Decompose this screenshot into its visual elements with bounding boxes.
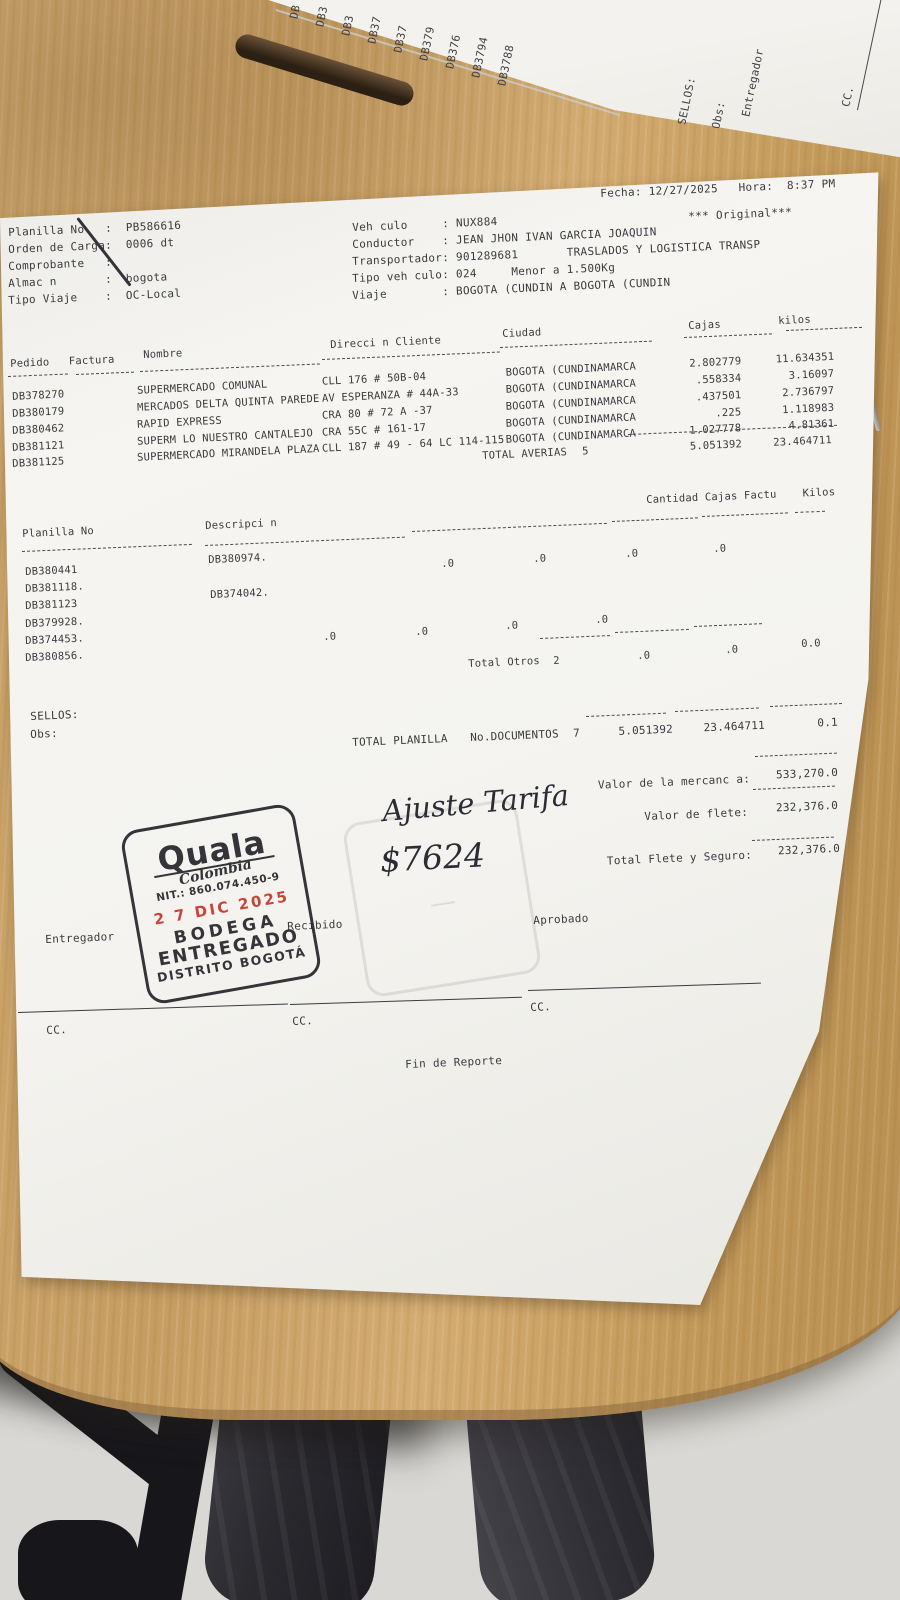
planilla-id: DB379928. [25,616,84,631]
docs-label: No.DOCUMENTOS [470,727,559,744]
docs-count: 7 [573,726,580,739]
top-sheet: DB DB3 DB3 DB37 DB37 DB379 DB376 DB3794 … [250,0,900,262]
cell-pedido: DB381125 [12,455,65,471]
obs-label: Obs: [30,727,58,741]
cell-pedido: DB380179 [12,405,65,421]
total-averias-label: TOTAL AVERIAS [482,446,567,463]
cell-nombre: RAPID EXPRESS [137,415,222,432]
col-cajas: Cajas [688,319,721,333]
cc-label: CC. [46,1023,67,1037]
stamp-ghost [341,797,542,998]
value-zero: .0 [323,630,337,644]
aprobado-label: Aprobado [533,912,589,927]
total-otros-count: 2 [553,655,560,668]
descripcion-id: DB380974. [208,552,267,567]
cc-label: CC. [530,1000,551,1014]
quala-stamp: Quala Colombia NIT.: 860.074.450-9 2 7 D… [119,802,323,1006]
cell-pedido: DB381121 [12,439,65,455]
value-zero: .0 [415,625,429,639]
value-zero: .0 [595,613,609,627]
top-sheet-paper [250,0,900,262]
value-zero: .0 [441,557,455,571]
value-zero: .0 [713,542,727,556]
total-planilla-label: TOTAL PLANILLA [352,732,448,749]
total-averias-count: 5 [582,445,589,458]
total-planilla-cajas: 5.051392 [583,723,673,740]
total-otros-v2: .0 [725,643,739,657]
col-nombre: Nombre [143,347,183,362]
descripcion-id: DB374042. [210,587,269,602]
value-zero: .0 [533,552,547,566]
chair-foot [18,1520,138,1600]
planilla-id: DB380856. [25,650,84,665]
col-ciudad: Ciudad [502,326,542,341]
planilla-id: DB381118. [25,581,84,596]
total-otros-v1: .0 [637,649,651,663]
value-zero: .0 [625,547,639,561]
total-planilla-extra: 0.1 [778,716,838,732]
cell-pedido: DB378270 [12,388,65,404]
photo-scene: Fecha: 12/27/2025 Hora: 8:37 PM *** Orig… [0,0,900,1600]
col-kilos: kilos [778,314,811,328]
sellos-label: SELLOS: [30,708,79,723]
planilla-id: DB380441 [25,564,78,579]
total-planilla-kilos: 23.464711 [665,719,765,736]
value-zero: .0 [505,619,519,633]
cell-pedido: DB380462 [12,422,65,438]
planilla-id: DB374453. [25,633,84,648]
cc-label: CC. [292,1014,313,1028]
planilla-id: DB381123 [25,598,78,613]
total-otros-v3: 0.0 [801,637,821,651]
